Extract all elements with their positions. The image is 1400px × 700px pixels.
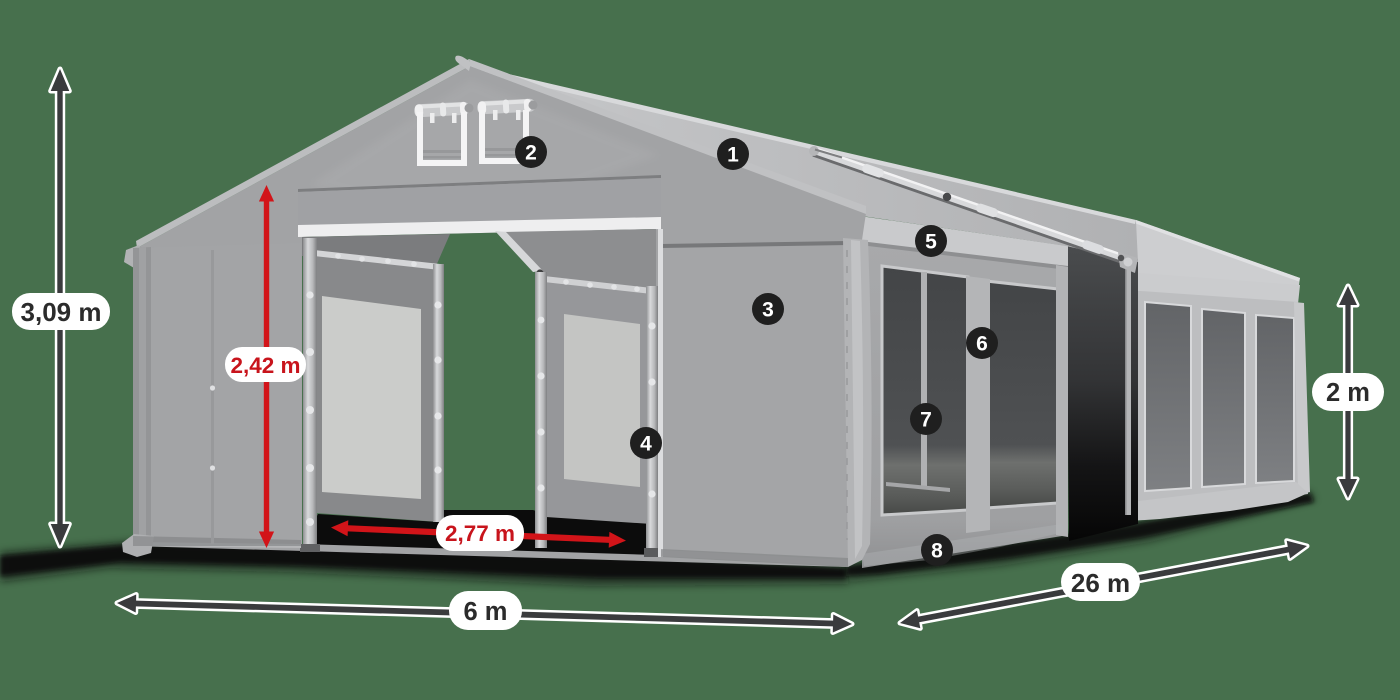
svg-text:1: 1 bbox=[727, 144, 739, 167]
svg-text:2: 2 bbox=[525, 142, 537, 165]
svg-text:2 m: 2 m bbox=[1326, 379, 1370, 407]
svg-text:6 m: 6 m bbox=[464, 598, 508, 626]
svg-text:3: 3 bbox=[762, 299, 774, 322]
svg-text:2,42 m: 2,42 m bbox=[230, 353, 300, 378]
svg-text:3,09 m: 3,09 m bbox=[21, 297, 102, 327]
svg-text:8: 8 bbox=[931, 540, 943, 563]
svg-text:6: 6 bbox=[976, 333, 988, 356]
svg-text:5: 5 bbox=[925, 231, 937, 254]
svg-text:26 m: 26 m bbox=[1071, 568, 1130, 598]
svg-text:7: 7 bbox=[920, 409, 932, 432]
svg-text:2,77 m: 2,77 m bbox=[445, 521, 515, 546]
svg-text:4: 4 bbox=[640, 433, 652, 456]
